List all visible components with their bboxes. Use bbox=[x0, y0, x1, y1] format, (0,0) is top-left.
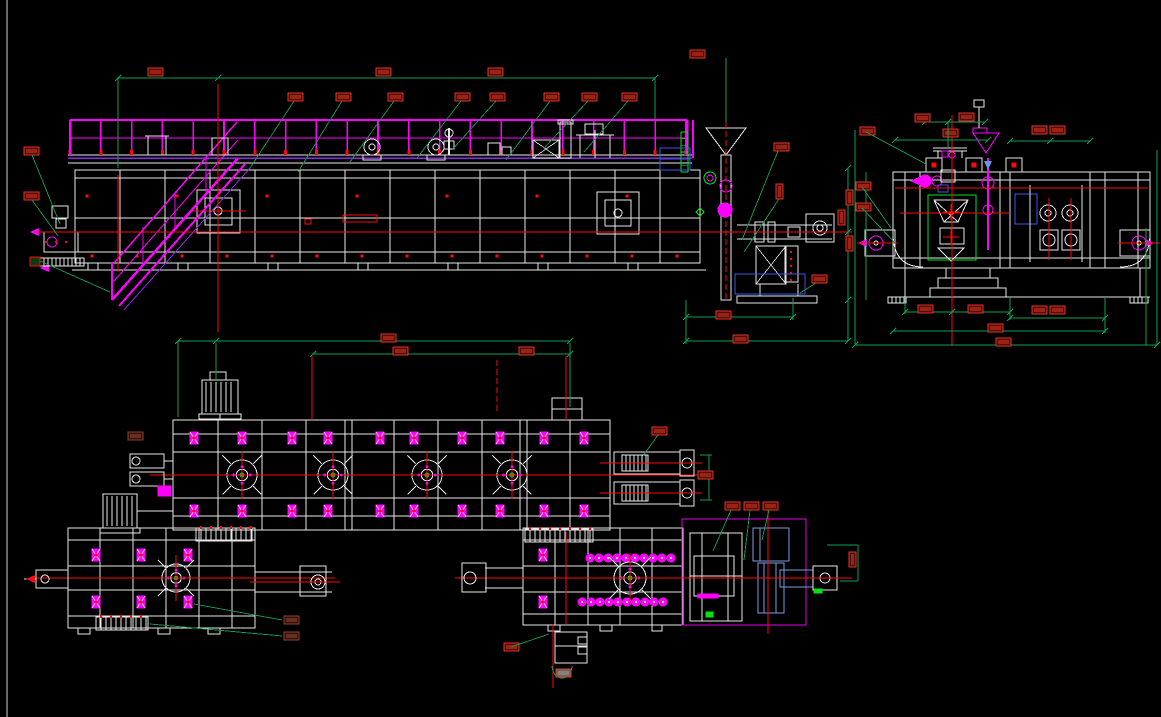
circle-detail bbox=[132, 457, 140, 465]
flange-port bbox=[218, 451, 266, 499]
circle-detail bbox=[1045, 210, 1051, 216]
circle-detail bbox=[919, 175, 931, 187]
dimension-label bbox=[1032, 126, 1047, 134]
pump-unit bbox=[130, 454, 164, 468]
bolt-marks bbox=[91, 255, 679, 258]
dimension-label bbox=[1050, 306, 1065, 314]
bearing-pad bbox=[238, 505, 246, 517]
feed-funnel bbox=[973, 133, 999, 153]
rect-detail bbox=[628, 263, 638, 270]
roller-strip bbox=[196, 526, 252, 541]
bearing-pad bbox=[540, 505, 548, 517]
bearing-pad bbox=[376, 505, 384, 517]
circle-detail bbox=[1062, 205, 1078, 221]
circle-detail bbox=[707, 175, 713, 181]
rect-detail bbox=[208, 628, 220, 634]
rect-detail bbox=[706, 612, 713, 617]
rect-detail bbox=[210, 372, 226, 380]
dimension-line bbox=[683, 314, 796, 320]
dimension-label bbox=[393, 347, 408, 355]
rect-detail bbox=[538, 263, 548, 270]
dimension-label bbox=[776, 184, 783, 199]
leader-line bbox=[862, 208, 895, 243]
dimension-label bbox=[622, 93, 637, 101]
exhaust-motor bbox=[199, 380, 241, 419]
feed-motor bbox=[100, 494, 140, 533]
rect-detail bbox=[1012, 163, 1016, 167]
dimension-label bbox=[148, 68, 163, 76]
rect-detail bbox=[178, 263, 188, 270]
machine-body-section bbox=[893, 172, 1150, 268]
bearing-pad bbox=[184, 549, 192, 561]
leader-line bbox=[194, 604, 282, 620]
rect-detail bbox=[158, 486, 171, 496]
rect-detail bbox=[448, 263, 458, 270]
rect-detail bbox=[78, 628, 90, 634]
bearing-pad bbox=[410, 505, 418, 517]
rect-detail bbox=[488, 143, 500, 155]
bolt-marks bbox=[790, 251, 792, 281]
dimension-label bbox=[544, 93, 559, 101]
dimension-label bbox=[24, 147, 39, 155]
dimension-label bbox=[376, 68, 391, 76]
dimension-label bbox=[763, 502, 778, 510]
line bbox=[934, 200, 958, 222]
dimension-label bbox=[918, 305, 933, 313]
rect-detail bbox=[268, 263, 278, 270]
bearing-pad bbox=[137, 596, 145, 608]
dimension-label bbox=[846, 236, 853, 251]
bearing-pad bbox=[137, 549, 145, 561]
rect-detail bbox=[502, 147, 511, 155]
bolt-marks bbox=[86, 195, 629, 198]
rect-detail bbox=[56, 219, 66, 228]
dimension-label bbox=[488, 68, 503, 76]
dimension-label bbox=[968, 305, 983, 313]
leader-line bbox=[511, 634, 549, 647]
bearing-pad bbox=[539, 596, 547, 608]
roller-row bbox=[578, 598, 667, 606]
leader-line bbox=[584, 101, 628, 152]
flow-arrow bbox=[910, 177, 919, 185]
circle-detail bbox=[1067, 210, 1073, 216]
rect-detail bbox=[974, 100, 984, 107]
bearing-pad bbox=[580, 432, 588, 444]
dimension-label bbox=[812, 275, 827, 283]
dimension-label bbox=[284, 632, 299, 640]
bearing-pad bbox=[458, 432, 466, 444]
dimension-label bbox=[725, 502, 740, 510]
circle-detail bbox=[704, 172, 716, 184]
rect-detail bbox=[578, 637, 587, 644]
flange-port bbox=[403, 451, 451, 499]
feed-fan bbox=[44, 232, 78, 252]
stair-stringer bbox=[112, 158, 238, 300]
rect-detail bbox=[932, 163, 936, 167]
pump-unit bbox=[130, 472, 164, 486]
rect-detail bbox=[946, 268, 990, 278]
bearing-pad bbox=[496, 432, 504, 444]
bearing-pad bbox=[184, 596, 192, 608]
leader-line bbox=[643, 435, 658, 456]
dimension-label bbox=[128, 432, 143, 440]
rect-detail bbox=[578, 647, 587, 654]
dimension-label bbox=[716, 311, 731, 319]
bearing-pad bbox=[324, 505, 332, 517]
rect-detail bbox=[358, 263, 368, 270]
dimension-label bbox=[519, 347, 534, 355]
bearing-pad bbox=[238, 432, 246, 444]
bearing-pad bbox=[580, 505, 588, 517]
plan-view bbox=[24, 334, 858, 688]
funnel bbox=[938, 248, 964, 261]
dimension-label bbox=[690, 50, 705, 58]
rect-detail bbox=[52, 206, 68, 218]
pedestal bbox=[756, 246, 786, 284]
dimension-label bbox=[943, 129, 958, 137]
bearing-pad bbox=[458, 505, 466, 517]
circle-detail bbox=[41, 575, 49, 583]
bearing-pad bbox=[410, 432, 418, 444]
bearing-pad bbox=[324, 432, 332, 444]
rect-detail bbox=[972, 163, 976, 167]
rect-detail bbox=[88, 263, 98, 270]
bearing-pad bbox=[540, 432, 548, 444]
dimension-label bbox=[288, 93, 303, 101]
dimension-label bbox=[860, 127, 875, 135]
circle-detail bbox=[1040, 205, 1056, 221]
bearing-pad bbox=[288, 432, 296, 444]
dimension-label bbox=[388, 93, 403, 101]
flange-port bbox=[309, 451, 357, 499]
inspection-door bbox=[597, 192, 639, 234]
flange-port bbox=[488, 451, 536, 499]
dimension-label bbox=[744, 502, 759, 510]
discharge-end-deck bbox=[523, 528, 683, 625]
dimension-line bbox=[683, 338, 851, 344]
rect-detail bbox=[548, 625, 560, 631]
cad-drawing-viewport bbox=[0, 0, 1161, 717]
dimension-label bbox=[582, 93, 597, 101]
bolt-marks bbox=[45, 241, 67, 243]
drive-gearbox bbox=[753, 528, 789, 561]
bearing-pad bbox=[92, 549, 100, 561]
dimension-label bbox=[849, 552, 856, 567]
leader-line bbox=[544, 101, 588, 148]
leader-line bbox=[800, 283, 816, 293]
bearing-pad bbox=[190, 432, 198, 444]
circle-detail bbox=[813, 221, 827, 235]
circle-detail bbox=[817, 225, 823, 231]
dimension-label bbox=[838, 210, 845, 225]
leader-line bbox=[866, 132, 926, 164]
dimension-label bbox=[336, 93, 351, 101]
line bbox=[944, 200, 968, 222]
dimension-label bbox=[284, 616, 299, 624]
dimension-label bbox=[1032, 306, 1047, 314]
leader-line bbox=[744, 510, 750, 560]
dimension-label bbox=[652, 427, 667, 435]
dimension-line bbox=[175, 338, 573, 344]
cad-canvas bbox=[0, 0, 1161, 717]
bearing-pad bbox=[92, 596, 100, 608]
dimension-line bbox=[1007, 315, 1108, 321]
bearing-pad bbox=[376, 432, 384, 444]
dimension-label bbox=[733, 335, 748, 343]
rect-detail bbox=[814, 589, 822, 593]
discharge-motor bbox=[806, 214, 834, 242]
rect-detail bbox=[938, 278, 998, 288]
dimension-label bbox=[1050, 126, 1065, 134]
rect-detail bbox=[1015, 194, 1037, 224]
rect-detail bbox=[652, 625, 662, 631]
dimension-label bbox=[915, 114, 930, 122]
flow-arrow bbox=[984, 161, 992, 170]
dimension-line bbox=[922, 119, 988, 125]
roller-strip bbox=[888, 297, 906, 303]
dimension-label bbox=[30, 257, 40, 266]
rect-detail bbox=[973, 128, 987, 133]
dimension-label bbox=[846, 190, 853, 205]
side-elevation-view bbox=[24, 50, 852, 344]
rect-detail bbox=[942, 151, 948, 157]
rect-detail bbox=[305, 219, 311, 224]
circle-detail bbox=[718, 203, 732, 217]
leader-line bbox=[742, 151, 778, 240]
dimension-label bbox=[381, 334, 396, 342]
curve-detail bbox=[893, 233, 923, 267]
leader-line bbox=[298, 101, 342, 172]
rect-detail bbox=[600, 625, 612, 631]
rect-detail bbox=[698, 594, 718, 598]
bearing-pad bbox=[539, 549, 547, 561]
dimension-label bbox=[959, 113, 974, 121]
dimension-label bbox=[988, 324, 1003, 332]
roller-strip bbox=[1130, 297, 1148, 303]
circle-detail bbox=[132, 475, 140, 483]
dimension-label bbox=[774, 143, 789, 151]
dimension-label bbox=[24, 192, 39, 200]
dimension-label bbox=[698, 471, 713, 479]
detail-boundary bbox=[682, 519, 806, 625]
pedestal bbox=[930, 288, 1006, 297]
bearing-pad bbox=[190, 505, 198, 517]
dimension-label bbox=[556, 669, 571, 677]
rect-detail bbox=[605, 200, 631, 226]
roller-strip bbox=[40, 258, 84, 266]
bearing-pad bbox=[288, 505, 296, 517]
rect-detail bbox=[737, 296, 817, 303]
dimension-line bbox=[1007, 138, 1093, 144]
dimension-label bbox=[996, 338, 1011, 346]
end-view bbox=[846, 100, 1160, 348]
rect-detail bbox=[158, 628, 170, 634]
bearing-pad bbox=[496, 505, 504, 517]
dimension-label bbox=[490, 93, 505, 101]
leader-line bbox=[350, 101, 394, 162]
flow-arrow bbox=[26, 575, 35, 583]
leader-line bbox=[32, 155, 60, 224]
dimension-label bbox=[455, 93, 470, 101]
